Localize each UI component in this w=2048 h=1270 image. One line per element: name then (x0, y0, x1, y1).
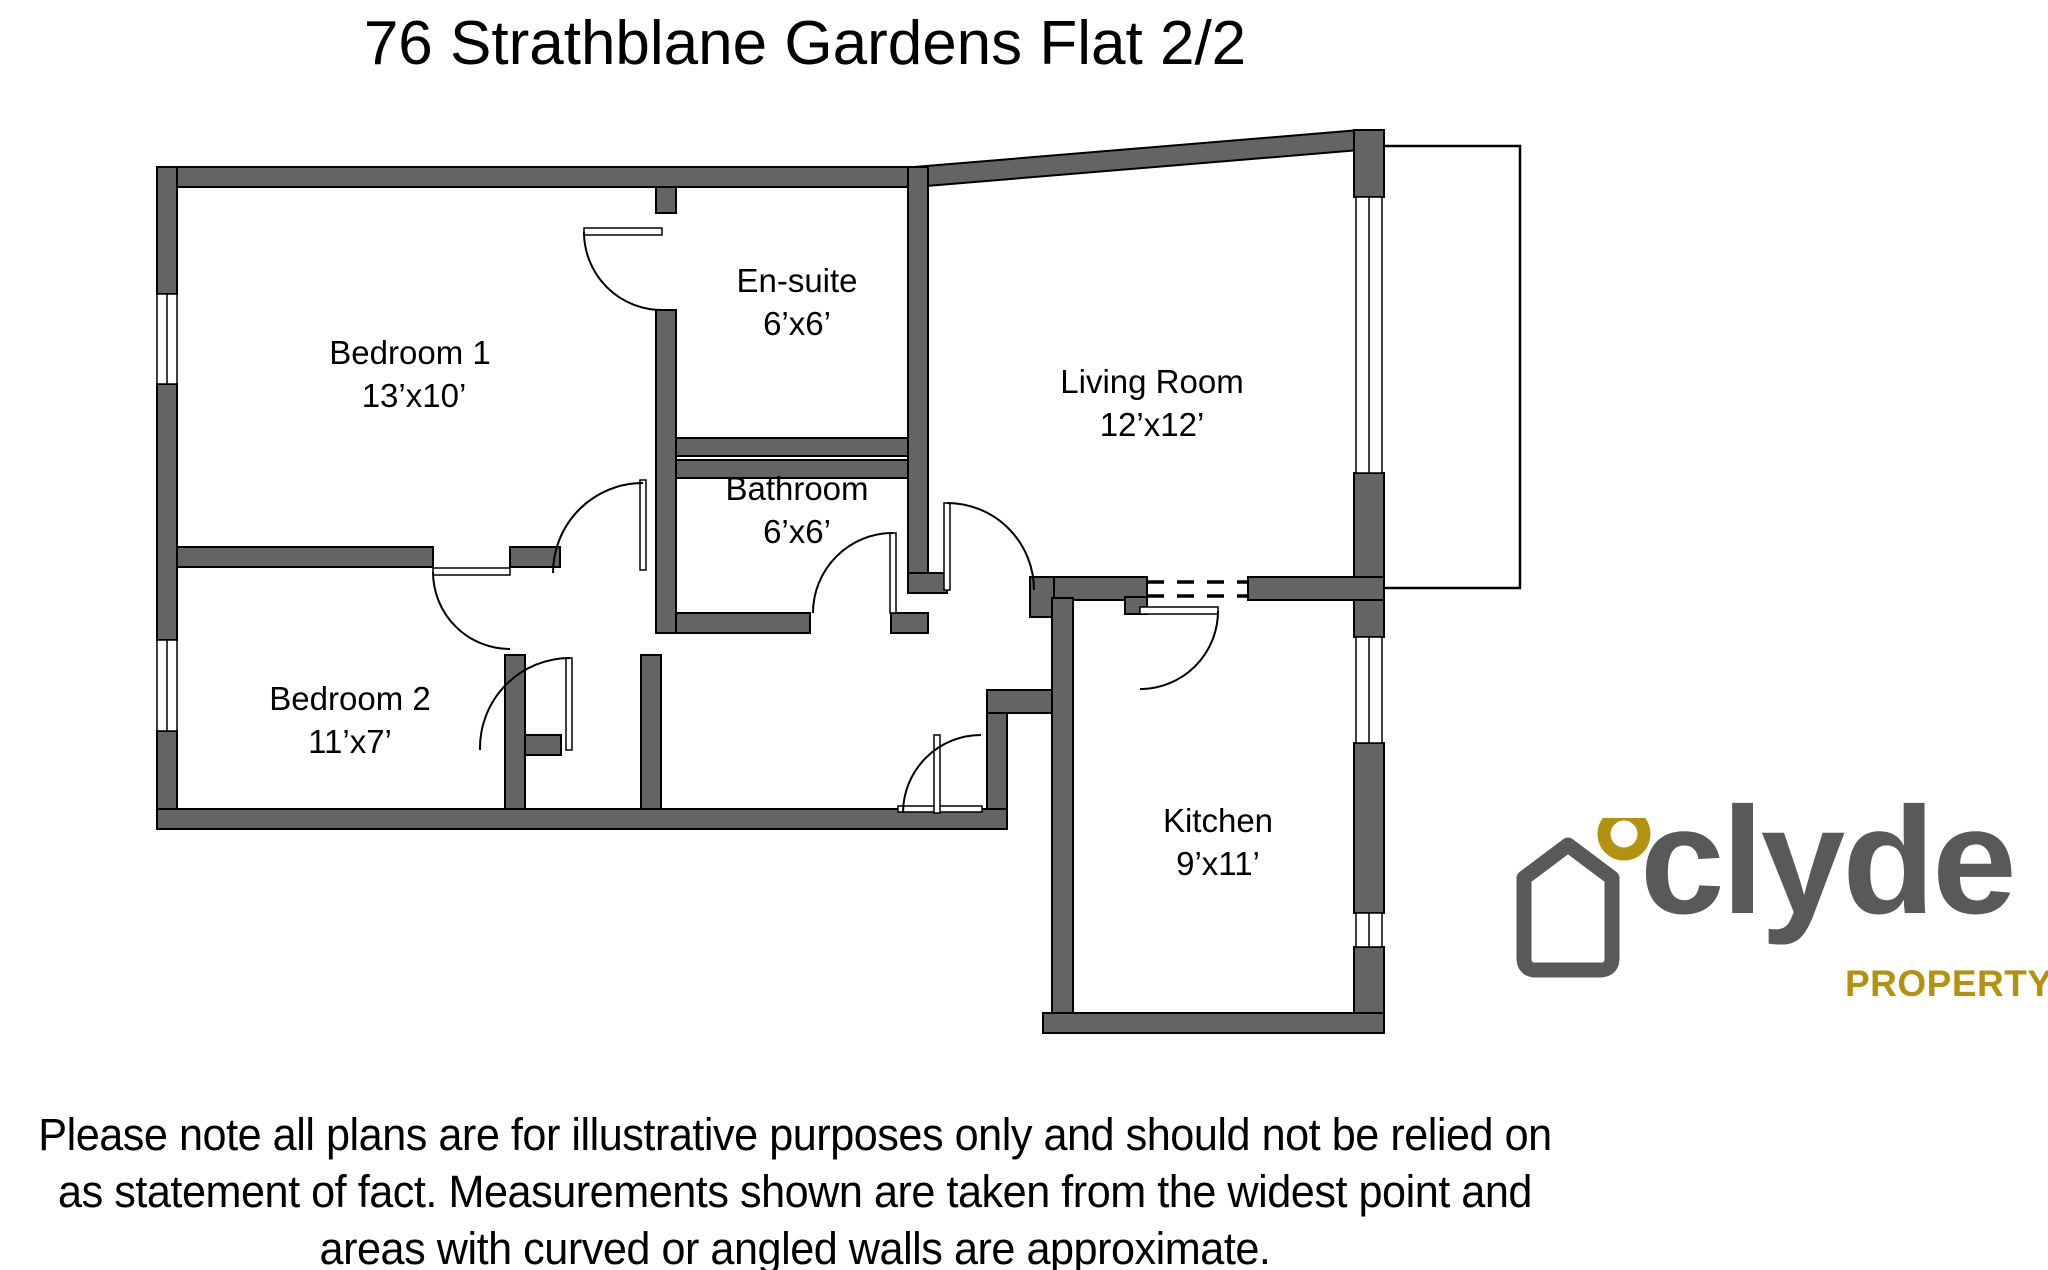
room-label-bathroom: Bathroom (725, 470, 868, 507)
window-living-right (1356, 197, 1382, 473)
wall-top (157, 167, 914, 187)
wall-living-door-stub (908, 573, 947, 593)
wall-kitchen-right-top (1354, 600, 1384, 637)
door-leaf-kitchen (1140, 607, 1218, 614)
wall-ensuite-left-stub (656, 187, 676, 213)
disclaimer-line-1: Please note all plans are for illustrati… (32, 1106, 1558, 1163)
floorplan-svg: Bedroom 1 13’x10’ En-suite 6’x6’ Bathroo… (0, 0, 2048, 1270)
wall-bottom (157, 809, 1007, 829)
dashed-opening (1147, 582, 1248, 596)
disclaimer-line-2: as statement of fact. Measurements shown… (32, 1163, 1558, 1220)
degree-ring-icon (1604, 818, 1644, 854)
room-label-kitchen: Kitchen (1163, 802, 1273, 839)
wall-closet-divider (525, 735, 561, 755)
wall-kitchen-right-bottom (1354, 947, 1384, 1013)
wall-bathroom-bottom-left (676, 613, 810, 633)
wall-corner-topright (1354, 130, 1384, 197)
wall-closet-left (505, 655, 525, 809)
door-arc-bedroom2 (433, 572, 510, 649)
wall-top-angled (914, 130, 1360, 187)
wall-living-bottom-right (1248, 577, 1384, 600)
window-bedroom1-left (157, 294, 177, 384)
door-arc-kitchen (1140, 611, 1218, 689)
clyde-property-logo: clyde PROPERTY (1490, 760, 2048, 1010)
room-size-kitchen: 9’x11’ (1176, 845, 1260, 882)
disclaimer: Please note all plans are for illustrati… (32, 1106, 1558, 1270)
door-arc-living (947, 503, 1034, 590)
door-leaf-ensuite (584, 228, 662, 235)
door-leaf-closet (566, 658, 572, 750)
room-size-ensuite: 6’x6’ (763, 305, 831, 342)
room-label-ensuite: En-suite (736, 262, 857, 299)
wall-left-1 (157, 167, 177, 294)
wall-left-2 (157, 384, 177, 640)
wall-ensuite-left-main (656, 310, 676, 633)
door-arc-bedroom1 (553, 483, 643, 573)
door-arc-entry (903, 735, 981, 813)
window-bedroom2-left (157, 640, 177, 731)
room-size-bedroom1: 13’x10’ (362, 377, 467, 414)
wall-closet-right (641, 655, 661, 809)
door-leaf-bathroom (890, 533, 896, 613)
door-leaf-bedroom1 (640, 480, 646, 570)
room-label-bedroom2: Bedroom 2 (269, 680, 430, 717)
wall-bathroom-bottom-right (891, 613, 928, 633)
wall-bedroom-divider-left (177, 547, 433, 567)
room-size-bathroom: 6’x6’ (763, 513, 831, 550)
wall-living-left (908, 167, 928, 593)
floorplan-page: 76 Strathblane Gardens Flat 2/2 (0, 0, 2048, 1270)
window-kitchen-right-2 (1356, 913, 1382, 947)
wall-kitchen-bottom (1043, 1013, 1384, 1033)
door-leaf-bedroom2 (433, 568, 510, 575)
wall-hall-bottom (987, 690, 1052, 713)
logo-tagline: PROPERTY (1845, 963, 2048, 1005)
wall-entry-side (987, 713, 1007, 809)
logo-brand: clyde (1640, 774, 2014, 949)
door-arc-ensuite (584, 232, 662, 310)
room-label-living: Living Room (1060, 363, 1243, 400)
window-kitchen-right-1 (1356, 637, 1382, 743)
wall-kitchen-left (1052, 598, 1073, 1013)
wall-kitchen-right-mid (1354, 743, 1384, 913)
room-labels: Bedroom 1 13’x10’ En-suite 6’x6’ Bathroo… (269, 262, 1273, 882)
door-leaf-living (944, 503, 950, 590)
wall-ensuite-bottom (676, 438, 910, 456)
disclaimer-line-3: areas with curved or angled walls are ap… (32, 1220, 1558, 1270)
house-icon (1500, 818, 1660, 1003)
room-label-bedroom1: Bedroom 1 (329, 334, 490, 371)
room-size-living: 12’x12’ (1100, 406, 1205, 443)
balcony-outline (1384, 146, 1520, 588)
room-size-bedroom2: 11’x7’ (308, 723, 392, 760)
